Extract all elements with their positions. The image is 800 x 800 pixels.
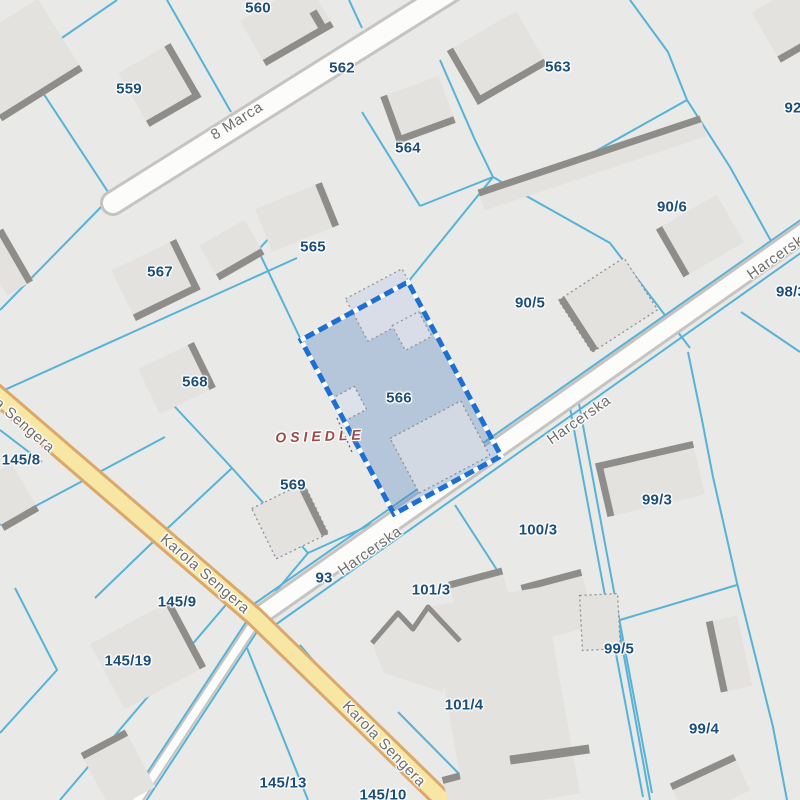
parcel-label-145-9[interactable]: 145/9 bbox=[158, 594, 197, 611]
parcel-label-90-5[interactable]: 90/5 bbox=[515, 295, 545, 312]
parcel-label-568[interactable]: 568 bbox=[182, 374, 208, 391]
map-canvas[interactable]: 560 559 562 563 564 92 90/6 565 567 90/5… bbox=[0, 0, 800, 800]
parcel-label-560[interactable]: 560 bbox=[245, 0, 271, 17]
parcel-label-562[interactable]: 562 bbox=[329, 60, 355, 77]
parcel-label-565[interactable]: 565 bbox=[300, 239, 326, 256]
parcel-label-569[interactable]: 569 bbox=[280, 477, 306, 494]
district-label-osiedle: OSIEDLE bbox=[275, 426, 365, 445]
parcel-label-100-3[interactable]: 100/3 bbox=[519, 522, 558, 539]
parcel-label-564[interactable]: 564 bbox=[395, 140, 421, 157]
parcel-label-101-4[interactable]: 101/4 bbox=[445, 697, 484, 714]
parcel-label-99-3[interactable]: 99/3 bbox=[642, 492, 672, 509]
parcel-label-559[interactable]: 559 bbox=[116, 81, 142, 98]
parcel-label-99-4[interactable]: 99/4 bbox=[689, 721, 719, 738]
parcel-label-93[interactable]: 93 bbox=[315, 570, 332, 587]
parcel-label-92[interactable]: 92 bbox=[784, 100, 800, 117]
parcel-label-563[interactable]: 563 bbox=[545, 59, 571, 76]
parcel-label-145-13[interactable]: 145/13 bbox=[259, 775, 306, 792]
parcel-label-566[interactable]: 566 bbox=[386, 390, 412, 407]
parcel-label-99-5[interactable]: 99/5 bbox=[604, 641, 634, 658]
parcel-label-98-3[interactable]: 98/3 bbox=[776, 284, 800, 301]
parcel-label-567[interactable]: 567 bbox=[147, 264, 173, 281]
parcel-label-101-3[interactable]: 101/3 bbox=[412, 582, 451, 599]
parcel-label-145-10[interactable]: 145/10 bbox=[359, 787, 406, 800]
parcel-label-145-19[interactable]: 145/19 bbox=[104, 653, 151, 670]
parcel-label-145-8[interactable]: 145/8 bbox=[2, 452, 41, 469]
parcel-label-90-6[interactable]: 90/6 bbox=[657, 199, 687, 216]
